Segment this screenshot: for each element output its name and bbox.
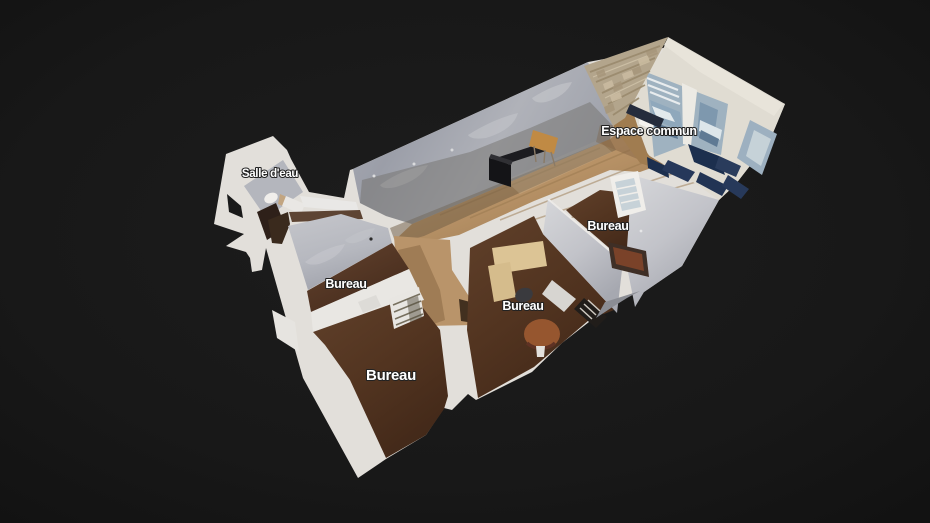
svg-text:Bureau: Bureau [325,277,366,291]
svg-text:Salle d'eau: Salle d'eau [242,168,299,180]
svg-text:Espace commun: Espace commun [601,124,696,138]
svg-text:Bureau: Bureau [587,219,628,233]
svg-text:Bureau: Bureau [366,367,416,384]
svg-text:Bureau: Bureau [502,299,543,313]
